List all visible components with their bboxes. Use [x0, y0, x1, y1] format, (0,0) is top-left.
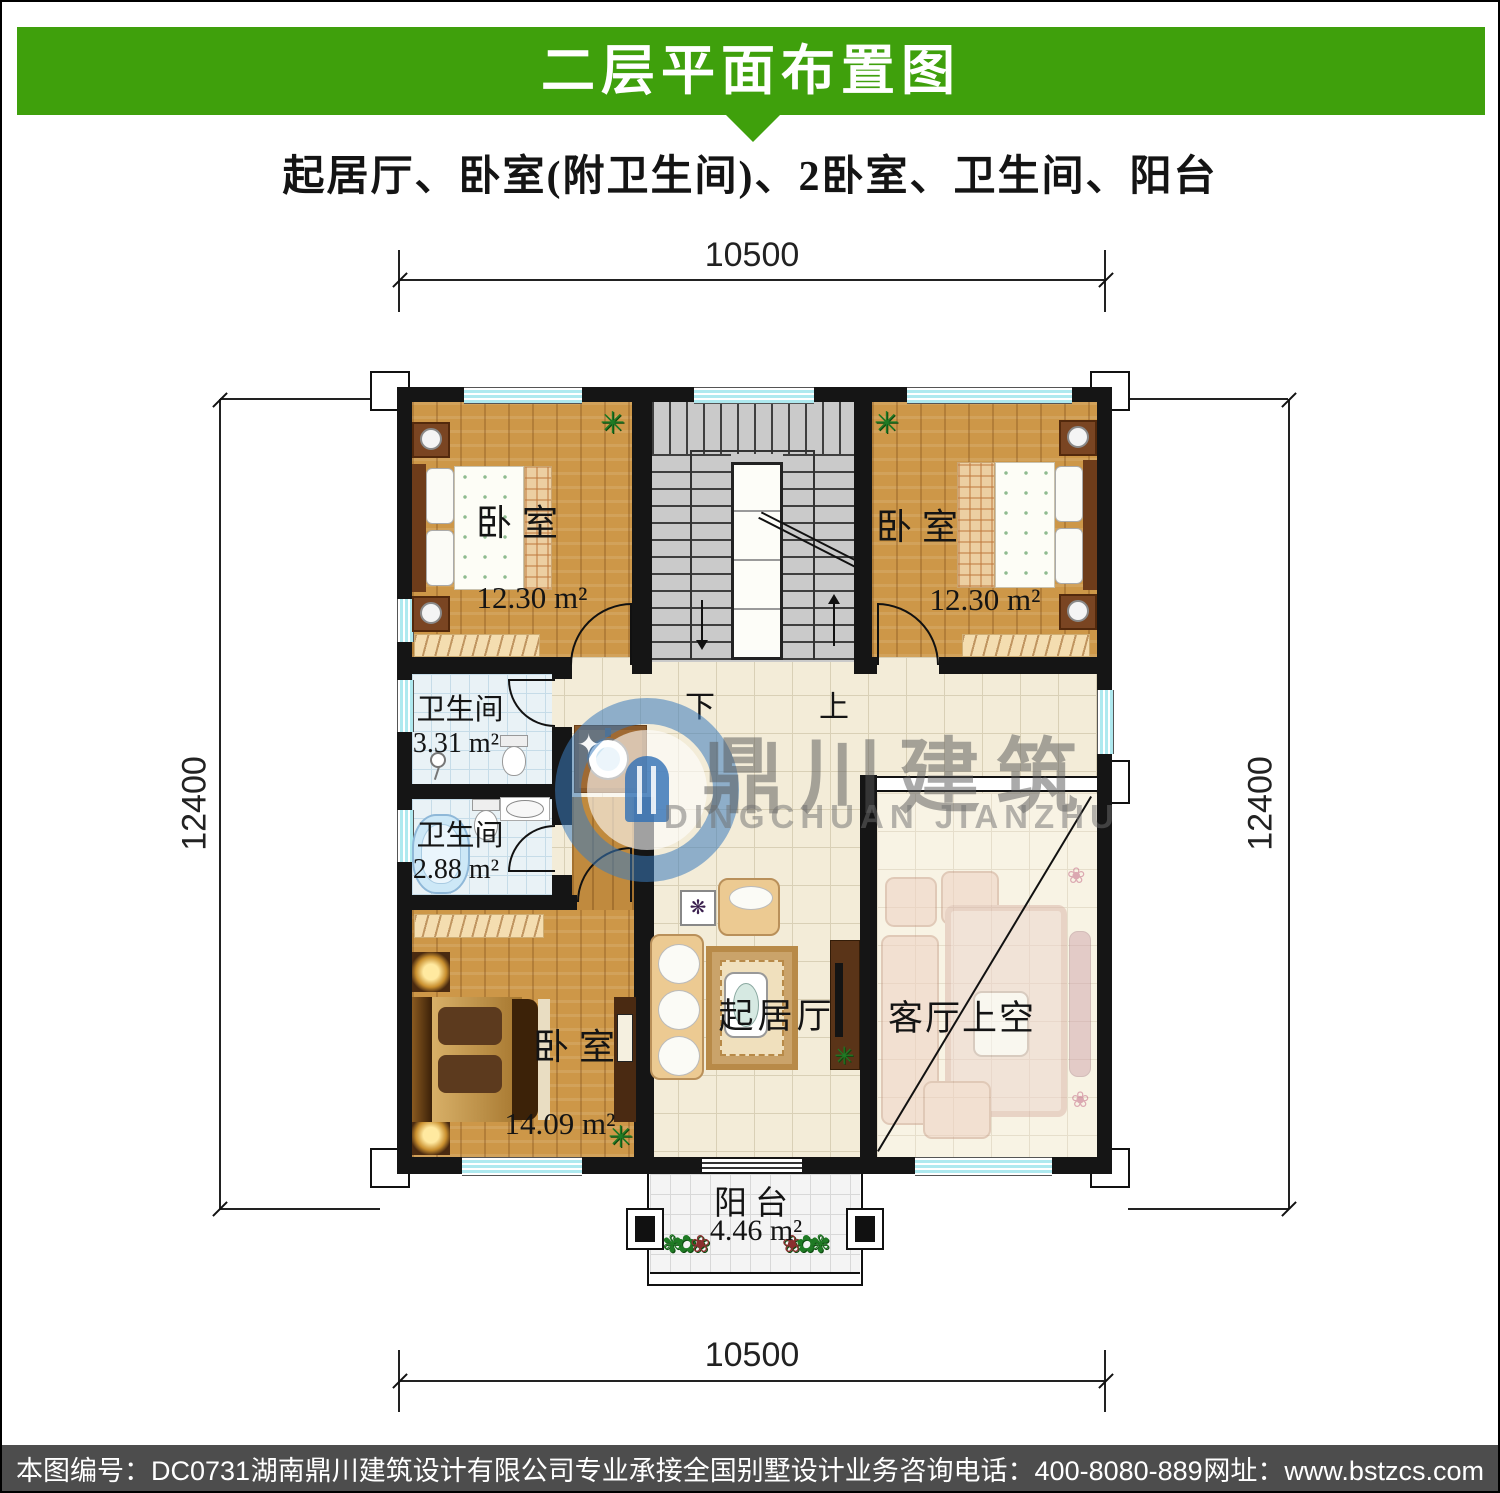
wall-bedroomTL-stair	[632, 400, 652, 674]
wall-h-bedrooms	[939, 657, 1112, 674]
dim-line-top	[399, 279, 1105, 281]
dim-line-bottom	[399, 1380, 1105, 1382]
footer-drawing-number: 本图编号：DC0731	[16, 1449, 250, 1488]
dim-line-right	[1288, 399, 1290, 1209]
room-label-bath2: 卫生间	[408, 812, 512, 854]
dim-witness	[220, 398, 380, 400]
room-area-bedroom-tr: 12.30 m²	[910, 582, 1060, 618]
lamp-icon	[1067, 600, 1089, 622]
flower-icon: ❀	[1067, 863, 1085, 889]
house-stripe	[637, 766, 642, 814]
floor-plan-sheet: 二层平面布置图 起居厅、卧室(附卫生间)、2卧室、卫生间、阳台 10500 10…	[0, 0, 1500, 1493]
room-label-bedroom-tr: 卧室	[857, 498, 987, 550]
dim-line-left	[219, 399, 221, 1209]
room-label-bedroom-bl: 卧室	[514, 1018, 644, 1070]
stair-landing-steps	[652, 402, 854, 454]
footer-company: 湖南鼎川建筑设计有限公司专业承接全国别墅设计业务	[251, 1449, 899, 1488]
door-leaf	[877, 603, 879, 665]
cushion	[658, 944, 700, 984]
balcony-column	[626, 1208, 664, 1250]
room-area-balcony: 4.46 m²	[694, 1214, 818, 1248]
nightstand	[412, 422, 450, 458]
watermark-name-en: DINGCHUAN JIANZHU	[664, 798, 1204, 836]
door-leaf	[508, 679, 555, 681]
wall-left	[397, 387, 412, 1174]
bedside-rug	[414, 634, 540, 657]
footer-bar: 本图编号：DC0731 湖南鼎川建筑设计有限公司专业承接全国别墅设计业务 咨询电…	[2, 1445, 1498, 1491]
tv-cabinet	[1069, 931, 1091, 1077]
plant-icon: ✳	[834, 1042, 854, 1071]
balcony-sliding-door	[702, 1159, 802, 1172]
page-subtitle: 起居厅、卧室(附卫生间)、2卧室、卫生间、阳台	[2, 142, 1498, 203]
watermark-house-icon	[625, 756, 669, 822]
lounge-chair	[923, 1081, 991, 1139]
nightstand	[1059, 594, 1097, 630]
wall-h-bedrooms	[854, 657, 877, 674]
stair-arrow-head	[696, 640, 708, 650]
dim-value-top: 10500	[652, 236, 852, 275]
window	[694, 387, 814, 404]
window	[462, 1157, 582, 1176]
cushion	[658, 1036, 700, 1076]
dim-value-bottom: 10500	[652, 1336, 852, 1375]
room-area-bedroom-tl: 12.30 m²	[457, 580, 607, 616]
pillow	[426, 468, 454, 524]
window	[464, 387, 582, 404]
dim-value-right: 12400	[1242, 734, 1281, 874]
bedside-rug	[414, 914, 544, 938]
bedside-rug	[962, 634, 1090, 657]
dim-witness	[1128, 1208, 1288, 1210]
armchair	[718, 878, 780, 936]
bed-headboard	[1083, 460, 1097, 590]
plant-icon: ✳	[874, 406, 899, 441]
bed-headboard	[412, 464, 426, 592]
lamp-table	[412, 952, 450, 992]
footer-phone: 咨询电话：400-8080-889	[900, 1449, 1203, 1488]
pillow	[426, 530, 454, 586]
flower-icon: ❀	[1071, 1087, 1089, 1113]
pillow	[438, 1007, 502, 1045]
room-area-bath1: 3.31 m²	[406, 728, 506, 760]
nightstand	[1059, 420, 1097, 456]
column-core	[635, 1216, 655, 1242]
balcony-column	[846, 1208, 884, 1250]
lamp-icon	[1067, 426, 1089, 448]
window	[907, 387, 1072, 404]
lamp-icon	[420, 428, 442, 450]
bed-headboard	[412, 997, 432, 1122]
balcony-railing-inner	[650, 1272, 860, 1274]
wall-h-bedrooms	[397, 657, 570, 674]
dim-value-left: 12400	[176, 734, 215, 874]
room-label-void: 客厅上空	[882, 990, 1042, 1041]
sofa	[650, 934, 704, 1080]
bed-sheet	[995, 462, 1055, 588]
door-leaf	[630, 603, 632, 665]
cushion	[729, 886, 773, 910]
footer-website: 网址：www.bstzcs.com	[1203, 1449, 1484, 1488]
room-label-bath1: 卫生间	[408, 686, 512, 728]
dim-witness	[1128, 398, 1288, 400]
wall-art-frame: ❋	[680, 890, 716, 926]
stair-arrow-up	[833, 602, 835, 646]
pillow	[1055, 466, 1083, 522]
room-label-living: 起居厅	[702, 988, 852, 1039]
room-label-bedroom-tl: 卧室	[457, 494, 587, 546]
column-core	[855, 1216, 875, 1242]
plant-icon: ✳	[600, 406, 625, 441]
sparkle-icon: ✦	[577, 728, 600, 761]
window	[915, 1157, 1052, 1176]
house-stripe	[651, 766, 656, 814]
wall-bath-right	[552, 875, 572, 910]
pillow	[438, 1055, 502, 1093]
void-faded-furniture: ❀ ❀	[877, 793, 1097, 1157]
room-area-bedroom-bl: 14.09 m²	[480, 1106, 640, 1142]
banner-pointer	[726, 115, 780, 142]
door-leaf	[508, 870, 555, 872]
page-title: 二层平面布置图	[17, 27, 1485, 115]
armchair	[885, 877, 937, 927]
stair-arrow-down	[701, 600, 703, 644]
stair-arrow-head	[828, 594, 840, 604]
lamp-icon	[420, 602, 442, 624]
pillow	[1055, 528, 1083, 584]
dim-witness	[220, 1208, 380, 1210]
nightstand	[412, 596, 450, 632]
cushion	[658, 990, 700, 1030]
room-area-bath2: 2.88 m²	[404, 854, 508, 886]
wall-bath2-bottom	[397, 895, 577, 910]
wall-bath-right	[552, 657, 572, 679]
stair-shaft	[731, 462, 783, 660]
